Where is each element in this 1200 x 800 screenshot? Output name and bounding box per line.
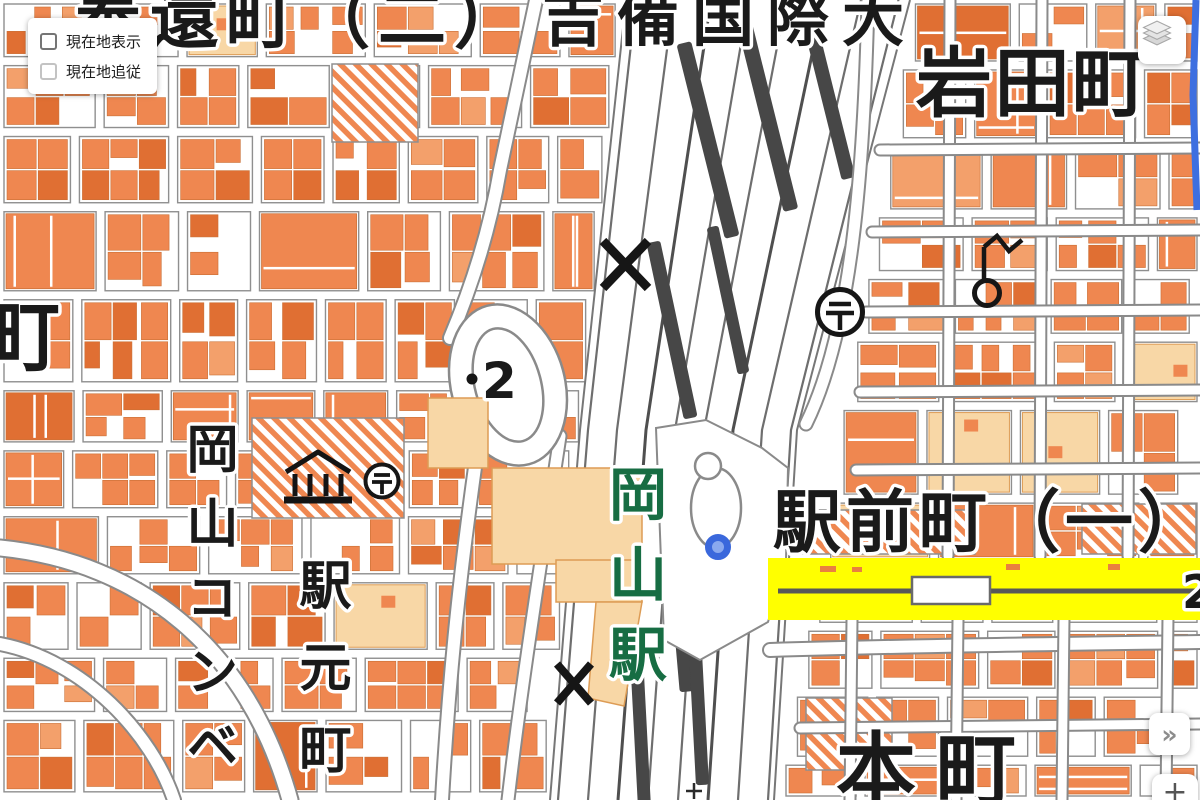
label-route-number: 2 — [1182, 565, 1200, 619]
layers-icon — [1138, 16, 1176, 50]
layers-button[interactable] — [1138, 16, 1186, 64]
elevation-point — [467, 374, 478, 385]
show-location-row[interactable]: 現在地表示 — [40, 28, 141, 54]
point-marker — [709, 538, 728, 557]
elevation-dot — [467, 374, 478, 385]
location-panel: 現在地表示 現在地追従 — [28, 18, 157, 94]
label-cut-cho: 町 — [0, 293, 60, 383]
follow-location-label: 現在地追従 — [66, 61, 141, 82]
zoom-in-button[interactable]: + — [1152, 774, 1198, 800]
map-canvas[interactable]: 奉還町（二） 吉備国際大 岩田町 町 駅前町（一） 本町 岡山駅 岡山コンベ 駅… — [0, 0, 1200, 800]
highlighted-route — [768, 558, 1200, 620]
map-screen: 奉還町（二） 吉備国際大 岩田町 町 駅前町（一） 本町 岡山駅 岡山コンベ 駅… — [0, 0, 1200, 800]
label-iwatacho: 岩田町 — [916, 39, 1150, 128]
follow-location-checkbox[interactable] — [40, 63, 57, 80]
label-station-name: 岡山駅 — [599, 464, 667, 704]
expand-panel-button[interactable]: » — [1149, 713, 1190, 755]
label-honmachi: 本町 — [836, 724, 1036, 800]
post-office-symbol-west — [366, 465, 399, 498]
plus-icon: + — [1162, 775, 1187, 800]
bridge-symbol — [912, 577, 990, 604]
label-kibi-university: 吉備国際大 — [542, 0, 917, 55]
label-ekimaecho: 駅前町（一） — [773, 484, 1200, 563]
post-office-symbol-main — [818, 290, 863, 335]
double-chevron-right-icon: » — [1161, 720, 1177, 749]
show-location-checkbox[interactable] — [40, 33, 57, 50]
show-location-label: 現在地表示 — [66, 31, 141, 52]
follow-location-row[interactable]: 現在地追従 — [40, 58, 141, 84]
label-elevation-value: 2 — [482, 352, 517, 410]
label-ekimotocho: 駅元町 — [290, 558, 351, 800]
label-okayama-conve: 岡山コンベ — [177, 422, 237, 792]
waterway — [1193, 0, 1197, 210]
